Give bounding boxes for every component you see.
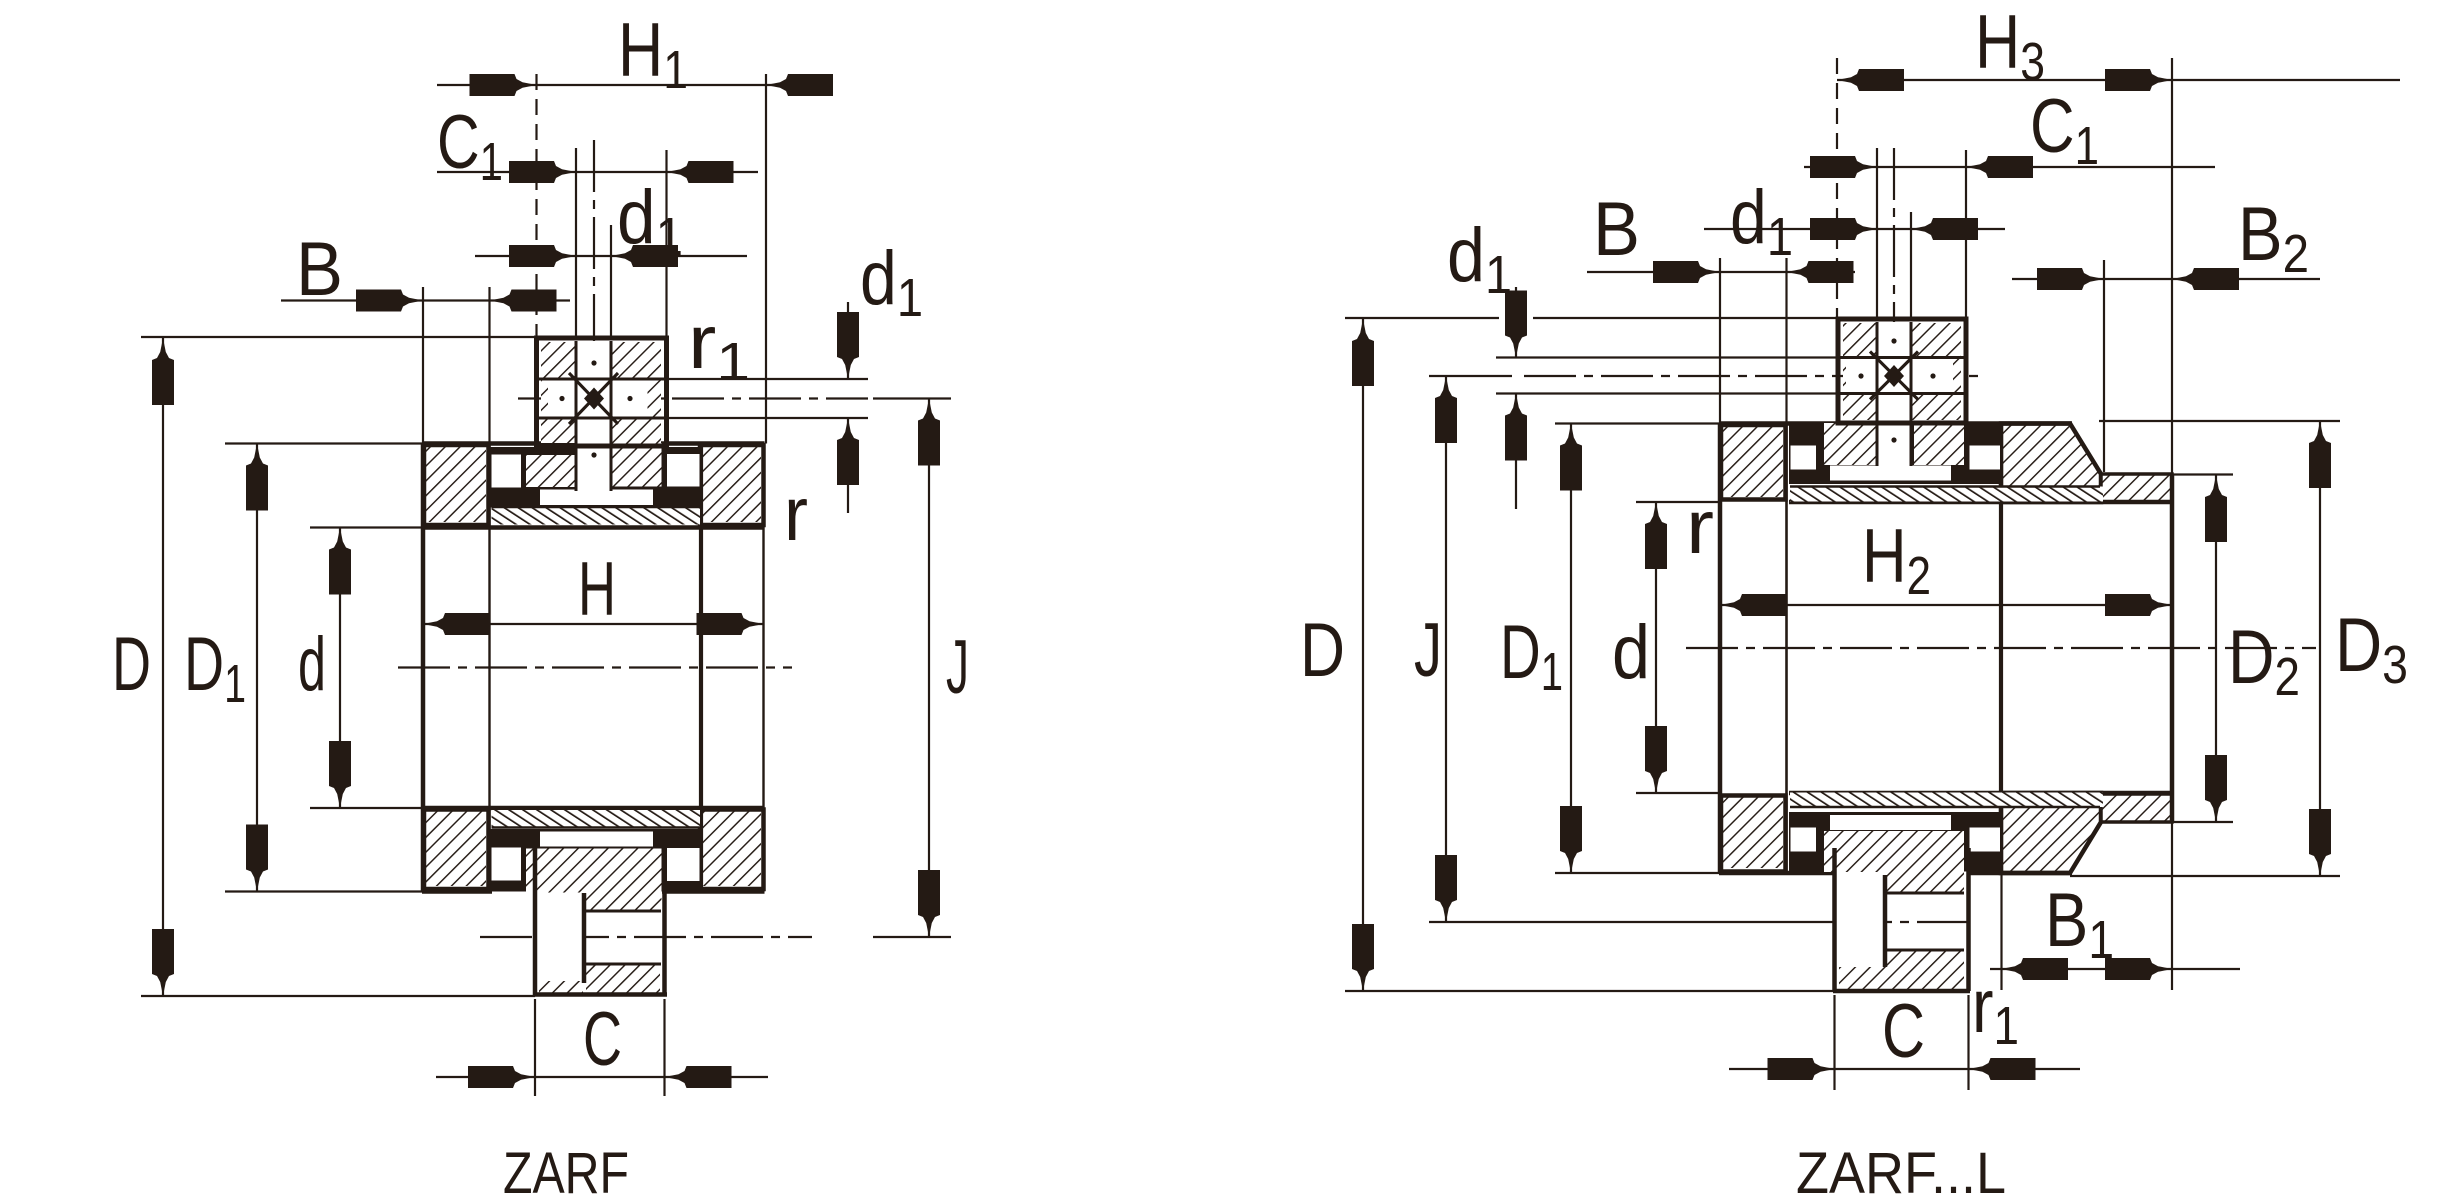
svg-text:C: C: [583, 997, 622, 1082]
svg-text:C: C: [1882, 989, 1925, 1074]
svg-text:B: B: [1593, 187, 1640, 272]
svg-text:ZARF...L: ZARF...L: [1796, 1141, 2006, 1197]
svg-text:r: r: [1686, 485, 1714, 570]
svg-text:B: B: [296, 227, 343, 312]
svg-text:J: J: [1414, 608, 1442, 693]
svg-text:J: J: [946, 625, 969, 710]
svg-text:r: r: [784, 472, 808, 557]
svg-text:d: d: [298, 622, 326, 707]
svg-text:H: H: [578, 547, 616, 632]
svg-text:D: D: [1300, 608, 1345, 693]
svg-text:d: d: [1612, 610, 1650, 695]
svg-text:ZARF: ZARF: [503, 1141, 629, 1197]
svg-text:D: D: [112, 622, 151, 707]
